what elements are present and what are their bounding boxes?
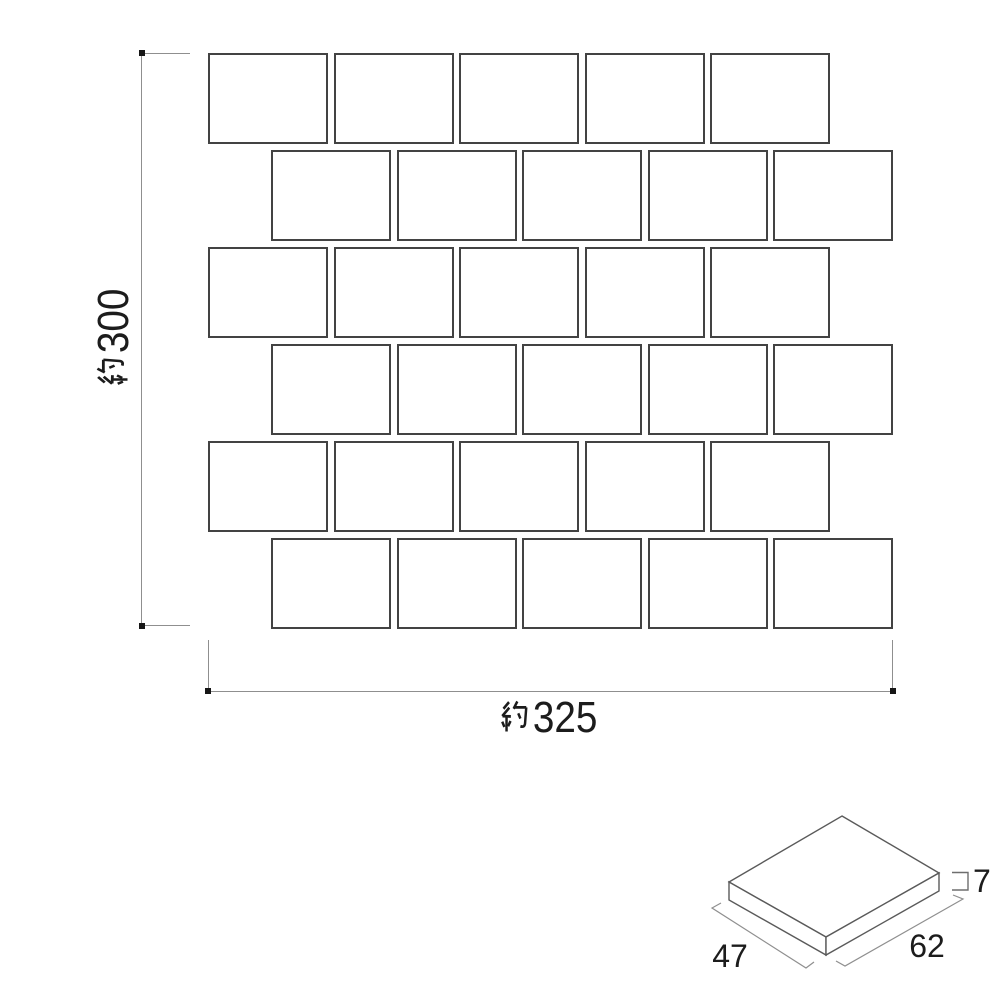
tile (271, 150, 391, 241)
tile-depth-label: 47 (712, 938, 748, 974)
tile (648, 150, 768, 241)
height-dim-top-dot (139, 50, 145, 56)
width-dimension-line (208, 691, 893, 692)
tile (334, 441, 454, 532)
tile-thickness-label: 7 (973, 863, 991, 899)
width-dim-left-dot (205, 688, 211, 694)
tile (522, 538, 642, 629)
width-dim-left-extension (208, 640, 209, 691)
tile (208, 247, 328, 338)
width-dim-right-dot (890, 688, 896, 694)
tile (397, 344, 517, 435)
drawing-canvas: 300 325 47 62 7 (0, 0, 1000, 1000)
tile (648, 344, 768, 435)
approx-kanji-icon (499, 700, 530, 735)
tile (334, 53, 454, 144)
tile (271, 344, 391, 435)
tile (710, 53, 830, 144)
tile (585, 53, 705, 144)
tile (397, 150, 517, 241)
tile (648, 538, 768, 629)
thickness-bracket (952, 873, 968, 891)
height-dimension-line (141, 53, 142, 626)
tile (773, 344, 893, 435)
height-dim-top-tick (142, 53, 190, 54)
tile (710, 441, 830, 532)
tile (459, 441, 579, 532)
approx-kanji-icon (96, 357, 131, 388)
tile (208, 53, 328, 144)
height-value: 300 (92, 289, 136, 354)
height-dimension-label: 300 (92, 289, 136, 388)
tile (459, 247, 579, 338)
tile (271, 538, 391, 629)
tile (459, 53, 579, 144)
tile (773, 538, 893, 629)
tile (585, 247, 705, 338)
tile (522, 150, 642, 241)
tile (585, 441, 705, 532)
tile (773, 150, 893, 241)
tile (710, 247, 830, 338)
height-dim-bottom-dot (139, 623, 145, 629)
tile (397, 538, 517, 629)
height-dim-bottom-tick (142, 625, 190, 626)
tile-width-label: 62 (909, 928, 945, 964)
width-dim-right-extension (892, 640, 893, 691)
tile (334, 247, 454, 338)
width-value: 325 (533, 696, 598, 740)
tile (208, 441, 328, 532)
tile-isometric-view: 47 62 7 (690, 795, 1000, 1000)
width-dimension-label: 325 (499, 696, 598, 740)
tile-top-face (729, 816, 939, 937)
tile (522, 344, 642, 435)
